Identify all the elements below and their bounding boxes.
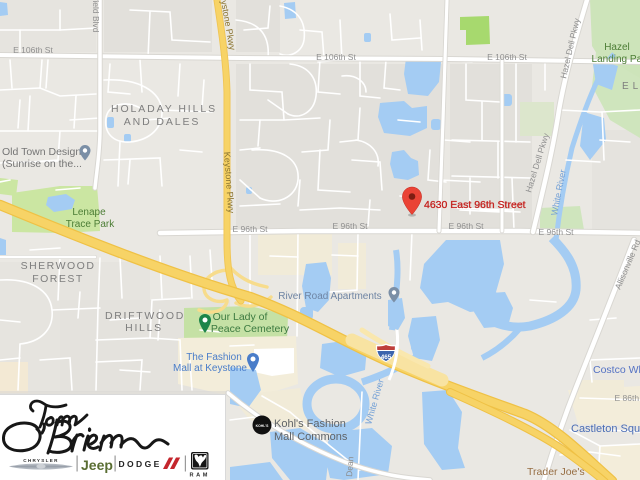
svg-text:465: 465	[381, 354, 392, 361]
svg-text:Hazel: Hazel	[604, 42, 630, 53]
svg-text:River Road Apartments: River Road Apartments	[278, 291, 381, 302]
svg-text:Trace Park: Trace Park	[66, 219, 116, 230]
svg-text:DRIFTWOOD: DRIFTWOOD	[105, 310, 185, 322]
svg-text:E 106th St: E 106th St	[316, 52, 356, 62]
svg-text:ELLE: ELLE	[622, 81, 640, 92]
svg-text:HOLADAY HILLS: HOLADAY HILLS	[111, 103, 217, 115]
svg-text:E 96th St: E 96th St	[449, 221, 485, 231]
svg-text:Trader Joe's: Trader Joe's	[527, 466, 585, 478]
svg-text:E 86th St: E 86th St	[615, 393, 640, 403]
svg-text:Mall Commons: Mall Commons	[274, 431, 348, 443]
svg-text:KOHL'S: KOHL'S	[256, 424, 269, 428]
svg-text:Landing Park: Landing Park	[592, 54, 640, 65]
svg-text:Dean: Dean	[344, 456, 355, 477]
svg-text:Costco Wholesale: Costco Wholesale	[593, 364, 640, 376]
svg-text:AND DALES: AND DALES	[124, 116, 201, 128]
svg-text:E 106th St: E 106th St	[13, 45, 53, 55]
svg-text:RAM: RAM	[190, 473, 211, 479]
svg-text:E 96th St: E 96th St	[333, 221, 369, 231]
svg-text:Old Town Design: Old Town Design	[2, 146, 81, 158]
svg-text:DODGE: DODGE	[119, 459, 162, 469]
svg-text:FOREST: FOREST	[32, 273, 84, 285]
svg-text:Jeep: Jeep	[81, 457, 113, 473]
svg-text:Peace Cemetery: Peace Cemetery	[211, 323, 290, 335]
svg-text:4630 East 96th Street: 4630 East 96th Street	[424, 199, 526, 211]
svg-text:Our Lady of: Our Lady of	[213, 311, 268, 323]
svg-text:Mall at Keystone: Mall at Keystone	[173, 363, 247, 374]
svg-text:field Blvd: field Blvd	[91, 0, 101, 33]
svg-text:SHERWOOD: SHERWOOD	[21, 260, 96, 272]
svg-text:HILLS: HILLS	[125, 322, 163, 334]
svg-text:CHRYSLER: CHRYSLER	[23, 458, 59, 463]
svg-text:Kohl's Fashion: Kohl's Fashion	[274, 418, 346, 430]
svg-text:Lenape: Lenape	[72, 207, 106, 218]
svg-text:(Sunrise on the...: (Sunrise on the...	[2, 158, 82, 170]
svg-text:E 106th St: E 106th St	[487, 52, 527, 62]
svg-text:E 96th St: E 96th St	[539, 227, 575, 237]
svg-text:Castleton Square: Castleton Square	[571, 423, 640, 435]
svg-text:The Fashion: The Fashion	[186, 352, 242, 363]
svg-text:E 96th St: E 96th St	[233, 224, 269, 234]
